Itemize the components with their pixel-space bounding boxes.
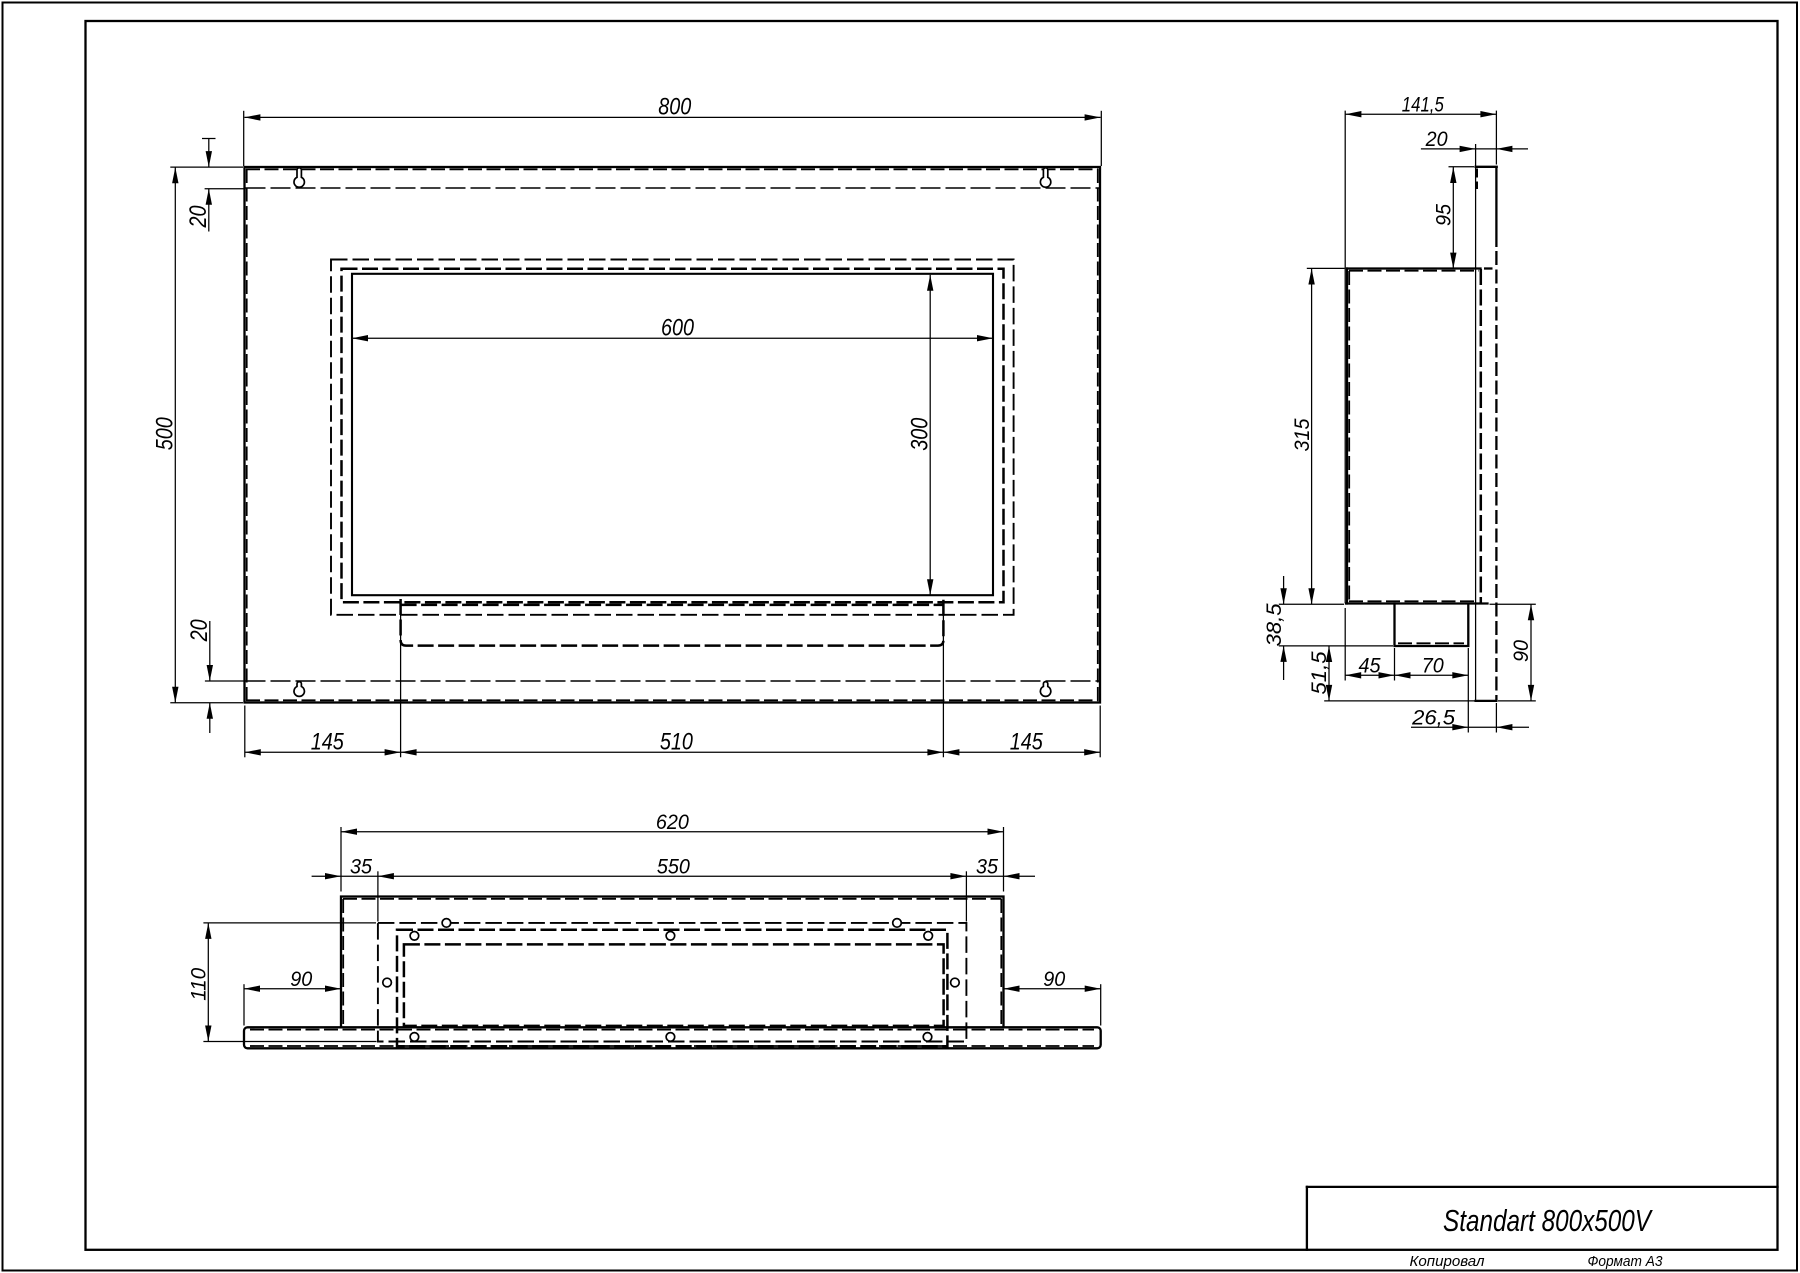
- svg-text:35: 35: [350, 855, 372, 878]
- svg-text:600: 600: [661, 314, 695, 341]
- svg-text:70: 70: [1422, 655, 1444, 678]
- svg-text:510: 510: [660, 729, 694, 756]
- svg-text:90: 90: [290, 968, 312, 991]
- svg-text:90: 90: [1510, 640, 1533, 662]
- svg-text:Копировал: Копировал: [1410, 1253, 1486, 1270]
- svg-text:145: 145: [1010, 729, 1044, 756]
- svg-text:800: 800: [658, 94, 692, 121]
- svg-text:Формат А3: Формат А3: [1588, 1253, 1664, 1270]
- svg-text:300: 300: [906, 417, 933, 451]
- svg-text:20: 20: [1425, 128, 1448, 151]
- svg-text:500: 500: [152, 417, 179, 451]
- svg-text:20: 20: [186, 619, 213, 642]
- svg-text:110: 110: [188, 967, 211, 1000]
- svg-text:35: 35: [976, 855, 998, 878]
- svg-text:90: 90: [1043, 968, 1065, 991]
- svg-text:141,5: 141,5: [1402, 93, 1444, 116]
- svg-text:Standart 800x500V: Standart 800x500V: [1443, 1203, 1654, 1238]
- svg-text:145: 145: [311, 729, 345, 756]
- svg-text:45: 45: [1359, 655, 1381, 678]
- svg-text:26,5: 26,5: [1411, 706, 1455, 729]
- svg-text:38,5: 38,5: [1263, 603, 1286, 646]
- svg-text:95: 95: [1433, 204, 1456, 226]
- svg-text:550: 550: [657, 855, 690, 878]
- svg-text:51,5: 51,5: [1308, 651, 1331, 694]
- svg-text:315: 315: [1291, 418, 1314, 451]
- svg-text:20: 20: [185, 205, 212, 228]
- svg-text:620: 620: [656, 811, 689, 834]
